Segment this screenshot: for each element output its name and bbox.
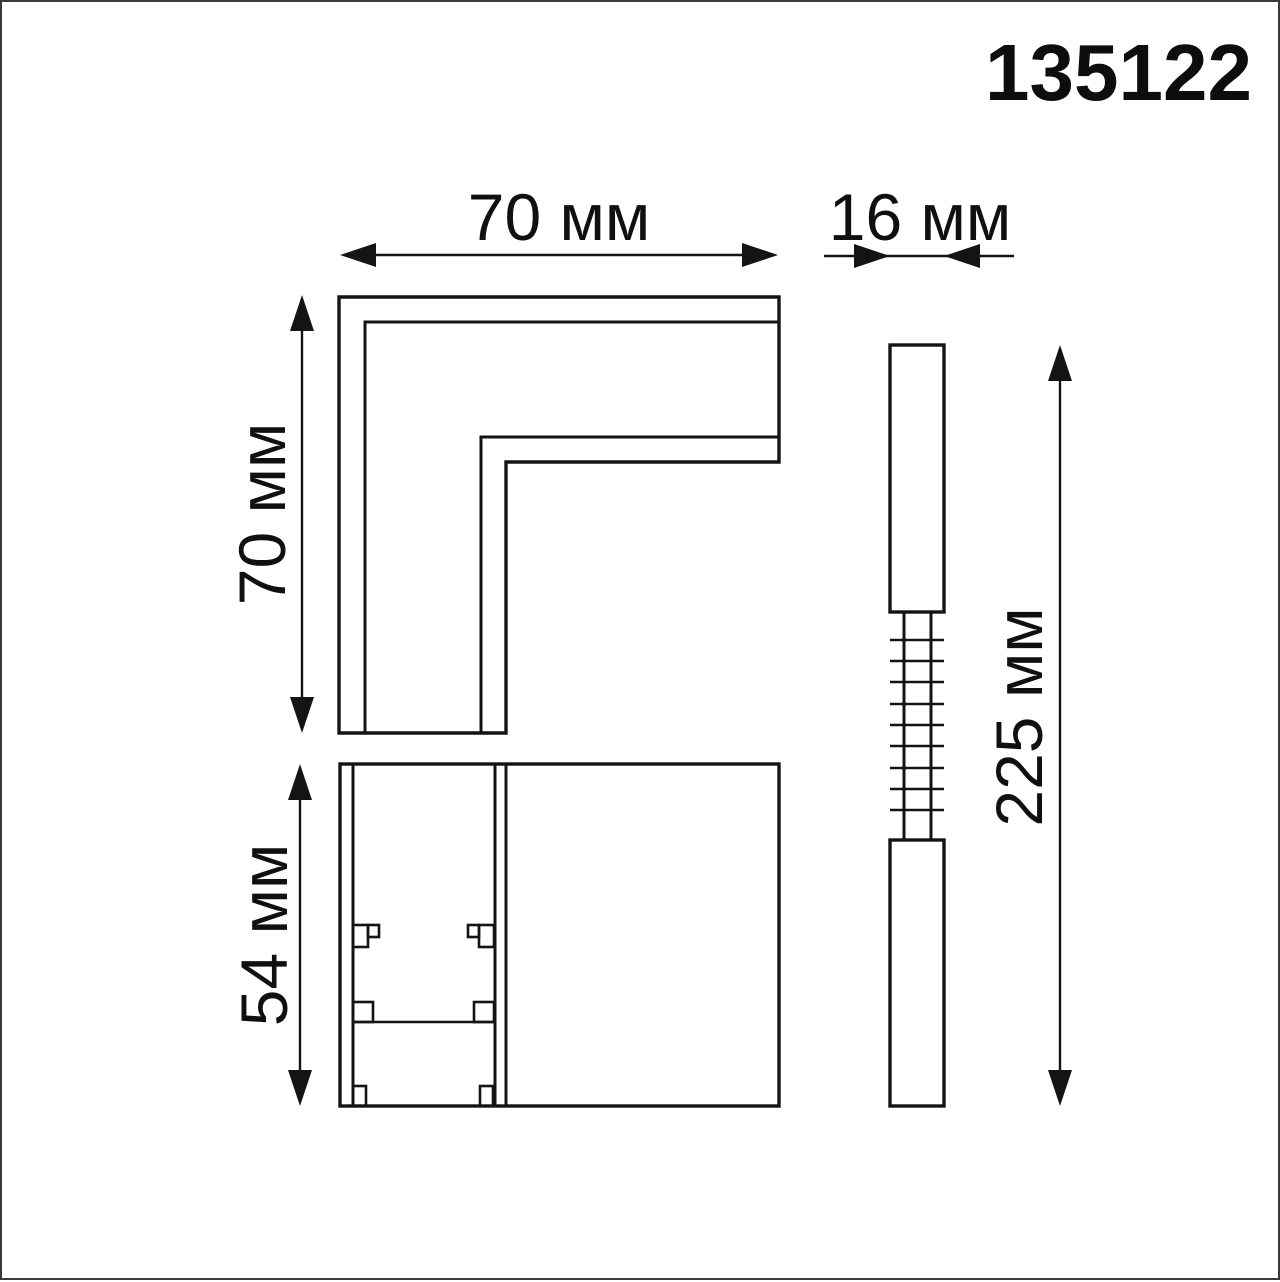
flex-ribs (890, 640, 944, 810)
dimension-drawing-canvas: 135122 70 мм 16 мм 70 мм (2, 2, 1280, 1282)
side-view-flex-connector (890, 345, 944, 1106)
arrowhead-left-icon (340, 243, 376, 267)
dim-connector-width-label: 16 мм (829, 180, 1012, 254)
arrowhead-up-icon (288, 764, 312, 800)
arrowhead-down-icon (290, 697, 314, 733)
front-view-connector (340, 764, 779, 1106)
dim-front-height: 54 мм (227, 764, 312, 1106)
arrowhead-up-icon (290, 295, 314, 331)
dim-front-height-label: 54 мм (227, 844, 301, 1027)
l-connector-inner-wall-outer (365, 322, 779, 733)
dim-total-length-label: 225 мм (982, 607, 1056, 826)
contact-clip-right-tab (468, 925, 479, 937)
arrowhead-right-icon (742, 243, 778, 267)
dim-top-width: 70 мм (340, 180, 778, 267)
dim-left-height-label: 70 мм (225, 423, 299, 606)
arrowhead-down-icon (1048, 1070, 1072, 1106)
dim-connector-width: 16 мм (824, 180, 1014, 268)
contact-clip-right (479, 925, 494, 947)
side-view-bottom-segment (890, 840, 944, 1106)
dim-total-length: 225 мм (982, 345, 1072, 1106)
contact-clip-left (353, 925, 368, 947)
front-view-outline (340, 764, 779, 1106)
dim-top-width-label: 70 мм (468, 180, 651, 254)
side-view-top-segment (890, 345, 944, 612)
foot-left (353, 1086, 366, 1106)
shelf-block-left (353, 1002, 373, 1022)
arrowhead-up-icon (1048, 345, 1072, 381)
shelf-block-right (474, 1002, 494, 1022)
l-connector-outer-outline (339, 297, 779, 733)
l-connector-inner-wall-inner (481, 437, 779, 733)
dim-left-height: 70 мм (225, 295, 314, 733)
technical-drawing-page: 135122 70 мм 16 мм 70 мм (0, 0, 1280, 1280)
product-code: 135122 (985, 28, 1252, 117)
contact-clip-left-tab (368, 925, 379, 937)
foot-right (480, 1086, 493, 1106)
top-view-l-connector (339, 297, 779, 733)
arrowhead-down-icon (288, 1070, 312, 1106)
